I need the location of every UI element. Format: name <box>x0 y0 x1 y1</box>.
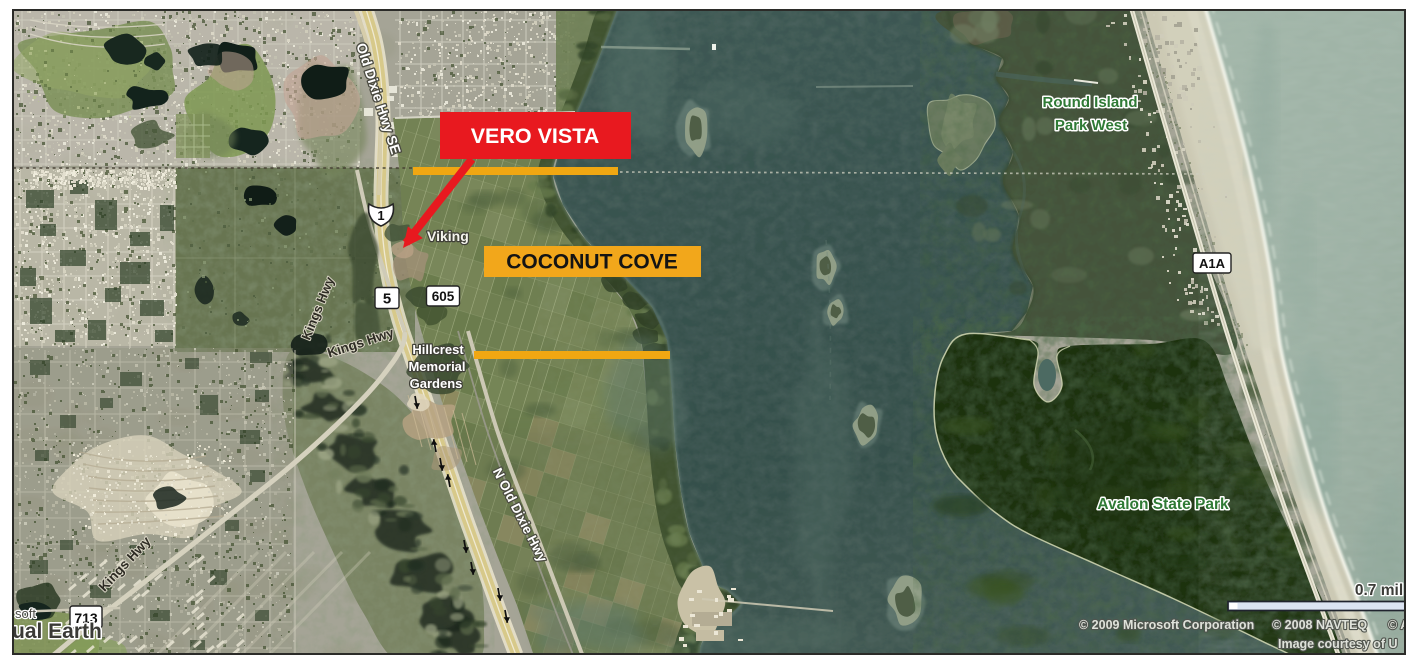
svg-text:soft: soft <box>15 606 36 621</box>
svg-text:Park West: Park West <box>1055 117 1127 134</box>
svg-text:© 2009 Microsoft Corporation: © 2009 Microsoft Corporation <box>1079 618 1254 632</box>
svg-text:VERO VISTA: VERO VISTA <box>471 124 600 148</box>
svg-text:Gardens: Gardens <box>410 376 463 391</box>
svg-text:Memorial: Memorial <box>408 359 465 374</box>
svg-text:ual Earth: ual Earth <box>12 620 102 643</box>
svg-text:Hillcrest: Hillcrest <box>412 342 464 357</box>
svg-text:A1A: A1A <box>1199 256 1226 271</box>
svg-text:0.7 mil: 0.7 mil <box>1355 582 1403 599</box>
svg-text:© 2008 NAVTEQ: © 2008 NAVTEQ <box>1272 618 1367 632</box>
svg-text:COCONUT COVE: COCONUT COVE <box>506 251 678 274</box>
svg-text:Round Island: Round Island <box>1043 94 1138 111</box>
svg-text:Avalon State Park: Avalon State Park <box>1097 496 1229 513</box>
svg-text:5: 5 <box>383 291 391 308</box>
svg-text:Image courtesy of U: Image courtesy of U <box>1278 637 1397 651</box>
svg-text:1: 1 <box>377 208 384 223</box>
svg-text:605: 605 <box>432 289 455 304</box>
svg-text:Viking: Viking <box>427 228 469 244</box>
